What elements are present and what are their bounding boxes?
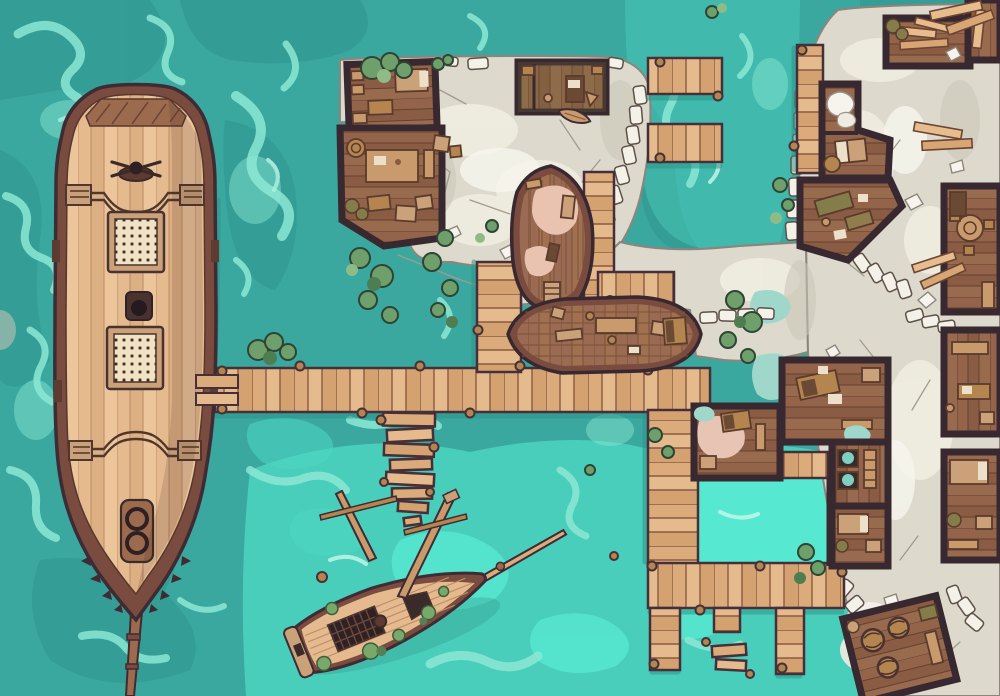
harbor-battle-map (0, 0, 1000, 696)
wall-block (468, 57, 489, 69)
deck-hatch-door (126, 292, 152, 320)
hull-building-vertical (512, 166, 593, 309)
walkway-dock (477, 262, 521, 372)
grated-hatch-aft (107, 327, 163, 389)
office-north (518, 62, 606, 112)
warehouse-l (340, 61, 442, 246)
right-rooms (944, 186, 1000, 560)
map-canvas (0, 0, 1000, 696)
main-dock (215, 368, 710, 412)
basin-dock-piece (782, 452, 828, 478)
grated-hatch-fore (108, 212, 164, 272)
wall-block (607, 57, 624, 69)
hull-building-horizontal (508, 297, 701, 373)
